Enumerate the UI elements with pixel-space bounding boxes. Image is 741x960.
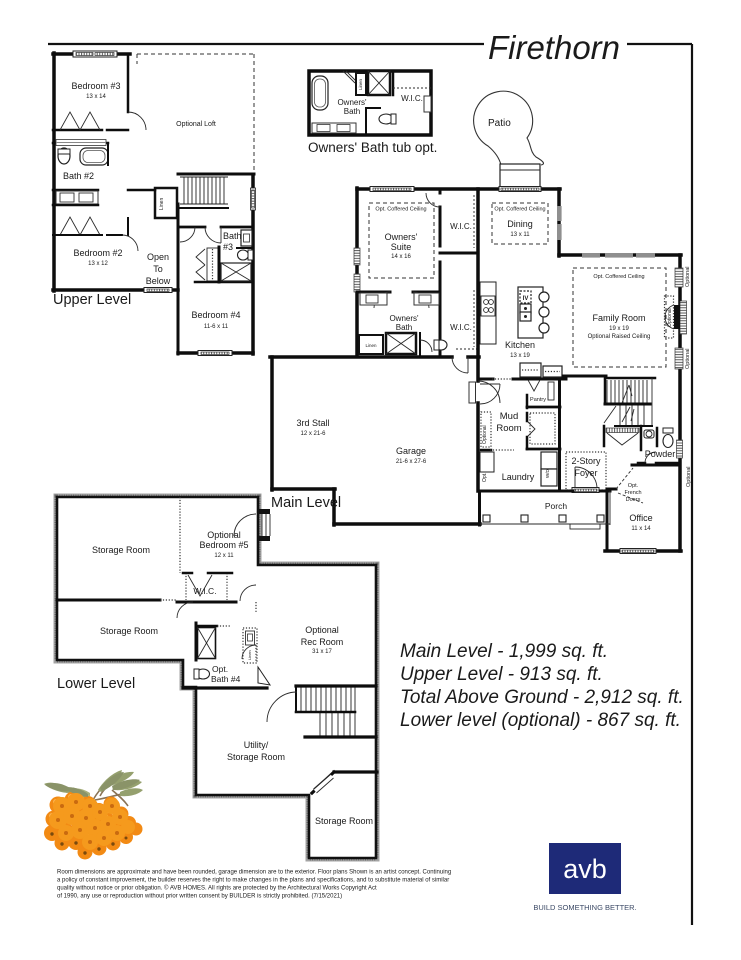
svg-text:Rec Room: Rec Room bbox=[301, 637, 344, 647]
svg-text:Optional: Optional bbox=[686, 467, 692, 488]
svg-text:of 1990, any use or reproducti: of 1990, any use or reproduction without… bbox=[57, 894, 342, 900]
svg-text:Optional Loft: Optional Loft bbox=[176, 121, 216, 128]
svg-text:Below: Below bbox=[146, 276, 171, 286]
svg-text:IV: IV bbox=[523, 296, 529, 302]
svg-text:3rd Stall: 3rd Stall bbox=[296, 418, 329, 428]
svg-text:Bath #2: Bath #2 bbox=[63, 171, 94, 181]
svg-text:Porch: Porch bbox=[545, 501, 567, 511]
svg-text:Bedroom #2: Bedroom #2 bbox=[73, 248, 122, 258]
svg-text:12 x 21-6: 12 x 21-6 bbox=[300, 431, 326, 437]
svg-text:French: French bbox=[624, 490, 641, 496]
svg-text:Upper Level: Upper Level bbox=[53, 292, 131, 308]
svg-text:Linen: Linen bbox=[159, 198, 165, 210]
svg-text:Mud: Mud bbox=[500, 411, 518, 422]
svg-text:2-Story: 2-Story bbox=[571, 456, 601, 466]
svg-text:a policy of constant improveme: a policy of constant improvement, the bu… bbox=[57, 878, 449, 884]
svg-text:Bedroom #5: Bedroom #5 bbox=[199, 540, 248, 550]
svg-text:Utility/: Utility/ bbox=[244, 740, 269, 750]
svg-text:Storage Room: Storage Room bbox=[315, 816, 373, 826]
svg-text:Owners' Bath tub opt.: Owners' Bath tub opt. bbox=[308, 140, 437, 155]
svg-text:Suite: Suite bbox=[391, 242, 412, 252]
svg-text:W.I.C.: W.I.C. bbox=[401, 94, 423, 103]
svg-text:Optional Raised Ceiling: Optional Raised Ceiling bbox=[588, 334, 651, 340]
svg-text:Bath: Bath bbox=[344, 107, 360, 116]
svg-text:Pantry: Pantry bbox=[530, 397, 546, 403]
svg-text:Optional: Optional bbox=[305, 625, 339, 635]
svg-text:Upper Level - 913 sq. ft.: Upper Level - 913 sq. ft. bbox=[400, 664, 603, 685]
svg-text:Open: Open bbox=[147, 252, 169, 262]
svg-text:BUILD SOMETHING BETTER.: BUILD SOMETHING BETTER. bbox=[533, 903, 636, 912]
svg-text:Bath: Bath bbox=[396, 323, 412, 332]
svg-text:Laundry: Laundry bbox=[502, 472, 535, 482]
svg-text:14 x 16: 14 x 16 bbox=[391, 254, 411, 260]
svg-text:Kitchen: Kitchen bbox=[505, 340, 535, 350]
svg-text:Lower Level: Lower Level bbox=[57, 676, 135, 692]
svg-text:Patio: Patio bbox=[488, 118, 511, 129]
svg-text:Lower level (optional) - 867 s: Lower level (optional) - 867 sq. ft. bbox=[400, 710, 681, 731]
svg-text:Bath: Bath bbox=[223, 231, 242, 241]
svg-text:31 x 17: 31 x 17 bbox=[312, 649, 332, 655]
svg-text:quality without notice or prio: quality without notice or prior obligati… bbox=[57, 885, 377, 892]
svg-text:Storage Room: Storage Room bbox=[227, 752, 285, 762]
svg-text:W.I.C.: W.I.C. bbox=[450, 222, 472, 231]
svg-text:Owners': Owners' bbox=[385, 232, 418, 242]
svg-text:12 x 11: 12 x 11 bbox=[214, 553, 234, 559]
svg-text:Linen: Linen bbox=[365, 343, 377, 348]
svg-text:11-6 x 11: 11-6 x 11 bbox=[204, 324, 229, 330]
svg-text:Opt. Coffered Ceiling: Opt. Coffered Ceiling bbox=[494, 207, 545, 213]
svg-text:Linen: Linen bbox=[247, 650, 252, 660]
svg-text:Total Above Ground - 2,912 sq.: Total Above Ground - 2,912 sq. ft. bbox=[400, 687, 684, 708]
svg-text:Bedroom #3: Bedroom #3 bbox=[71, 81, 120, 91]
svg-text:Owners': Owners' bbox=[337, 98, 367, 107]
svg-text:19 x 19: 19 x 19 bbox=[609, 326, 629, 332]
svg-text:Opt.: Opt. bbox=[628, 483, 639, 489]
svg-text:Room dimensions are approximat: Room dimensions are approximate and have… bbox=[57, 870, 451, 876]
svg-text:Optional: Optional bbox=[685, 267, 691, 288]
svg-text:Office: Office bbox=[629, 513, 652, 523]
svg-text:13 x 19: 13 x 19 bbox=[510, 353, 530, 359]
svg-text:Bath #4: Bath #4 bbox=[211, 674, 241, 684]
svg-text:Main Level - 1,999 sq. ft.: Main Level - 1,999 sq. ft. bbox=[400, 641, 608, 662]
svg-text:To: To bbox=[153, 264, 163, 274]
svg-text:Main Level: Main Level bbox=[271, 495, 341, 511]
svg-text:Garage: Garage bbox=[396, 446, 426, 456]
svg-text:Opt. Coffered Ceiling: Opt. Coffered Ceiling bbox=[375, 207, 426, 213]
svg-text:Optional: Optional bbox=[685, 349, 691, 370]
svg-text:13 x 11: 13 x 11 bbox=[510, 232, 530, 238]
svg-text:Opt.: Opt. bbox=[212, 664, 228, 674]
svg-text:Storage Room: Storage Room bbox=[100, 626, 158, 636]
svg-text:21-6 x 27-6: 21-6 x 27-6 bbox=[396, 459, 427, 465]
svg-text:Room: Room bbox=[496, 423, 521, 434]
svg-text:avb: avb bbox=[563, 854, 607, 884]
svg-text:Powder: Powder bbox=[645, 449, 676, 459]
svg-text:Storage Room: Storage Room bbox=[92, 545, 150, 555]
svg-text:Optional: Optional bbox=[482, 425, 488, 444]
svg-text:Optional: Optional bbox=[207, 530, 241, 540]
svg-text:Opt. Coffered Ceiling: Opt. Coffered Ceiling bbox=[593, 274, 644, 280]
svg-text:Family Room: Family Room bbox=[592, 313, 645, 323]
svg-text:Bedroom #4: Bedroom #4 bbox=[191, 310, 240, 320]
svg-text:13 x 14: 13 x 14 bbox=[86, 94, 106, 100]
svg-text:W.I.C.: W.I.C. bbox=[450, 323, 472, 332]
svg-text:Firethorn: Firethorn bbox=[488, 29, 620, 66]
svg-text:13 x 12: 13 x 12 bbox=[88, 261, 108, 267]
svg-text:Dining: Dining bbox=[507, 219, 533, 229]
svg-text:Linen: Linen bbox=[358, 78, 363, 90]
svg-text:Opt.: Opt. bbox=[482, 473, 488, 482]
svg-text:Optional: Optional bbox=[667, 308, 673, 327]
svg-text:Doors: Doors bbox=[626, 497, 641, 503]
svg-text:#3: #3 bbox=[223, 242, 233, 252]
svg-text:W/D: W/D bbox=[545, 469, 550, 478]
svg-text:Owners': Owners' bbox=[389, 314, 419, 323]
svg-text:11 x 14: 11 x 14 bbox=[631, 526, 651, 532]
